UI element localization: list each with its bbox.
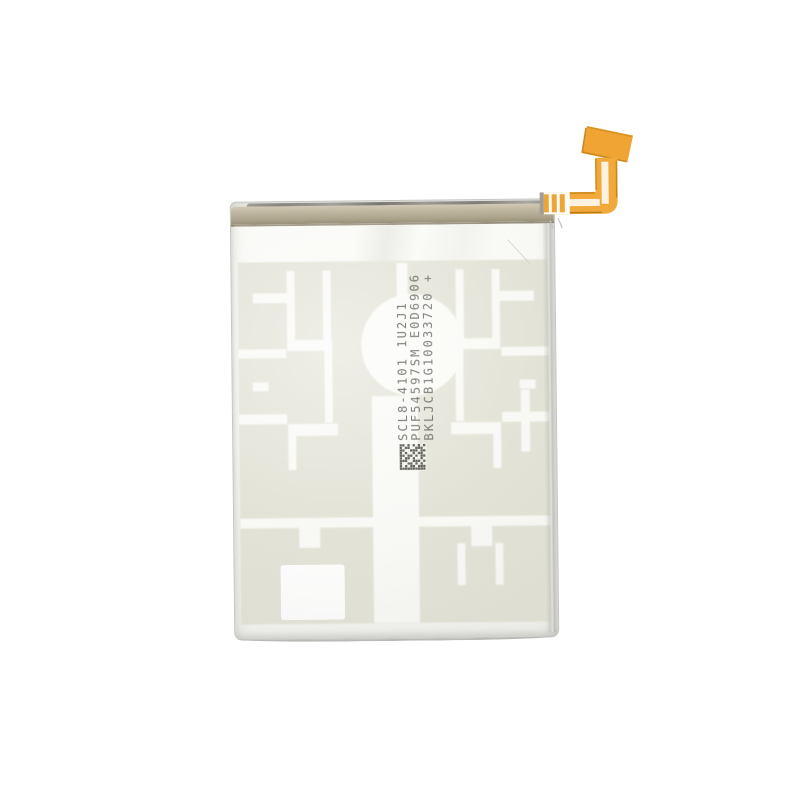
sticker-patch bbox=[281, 565, 346, 621]
foil-crinkles bbox=[550, 218, 563, 228]
marking-line-3: BKLJCB1G10033720 + bbox=[421, 247, 436, 441]
flex-contacts bbox=[540, 192, 570, 214]
datamatrix-code bbox=[399, 444, 426, 471]
foil-sheen-top bbox=[235, 223, 550, 262]
battery: SCL8-4101 1U2J1 PUF54597SM E0D6906 BKLJC… bbox=[230, 198, 560, 640]
seal-tape bbox=[231, 203, 554, 226]
battery-assembly: SCL8-4101 1U2J1 PUF54597SM E0D6906 BKLJC… bbox=[230, 198, 558, 638]
product-photo-stage: SCL8-4101 1U2J1 PUF54597SM E0D6906 BKLJC… bbox=[0, 0, 800, 800]
flex-cable bbox=[537, 115, 648, 228]
